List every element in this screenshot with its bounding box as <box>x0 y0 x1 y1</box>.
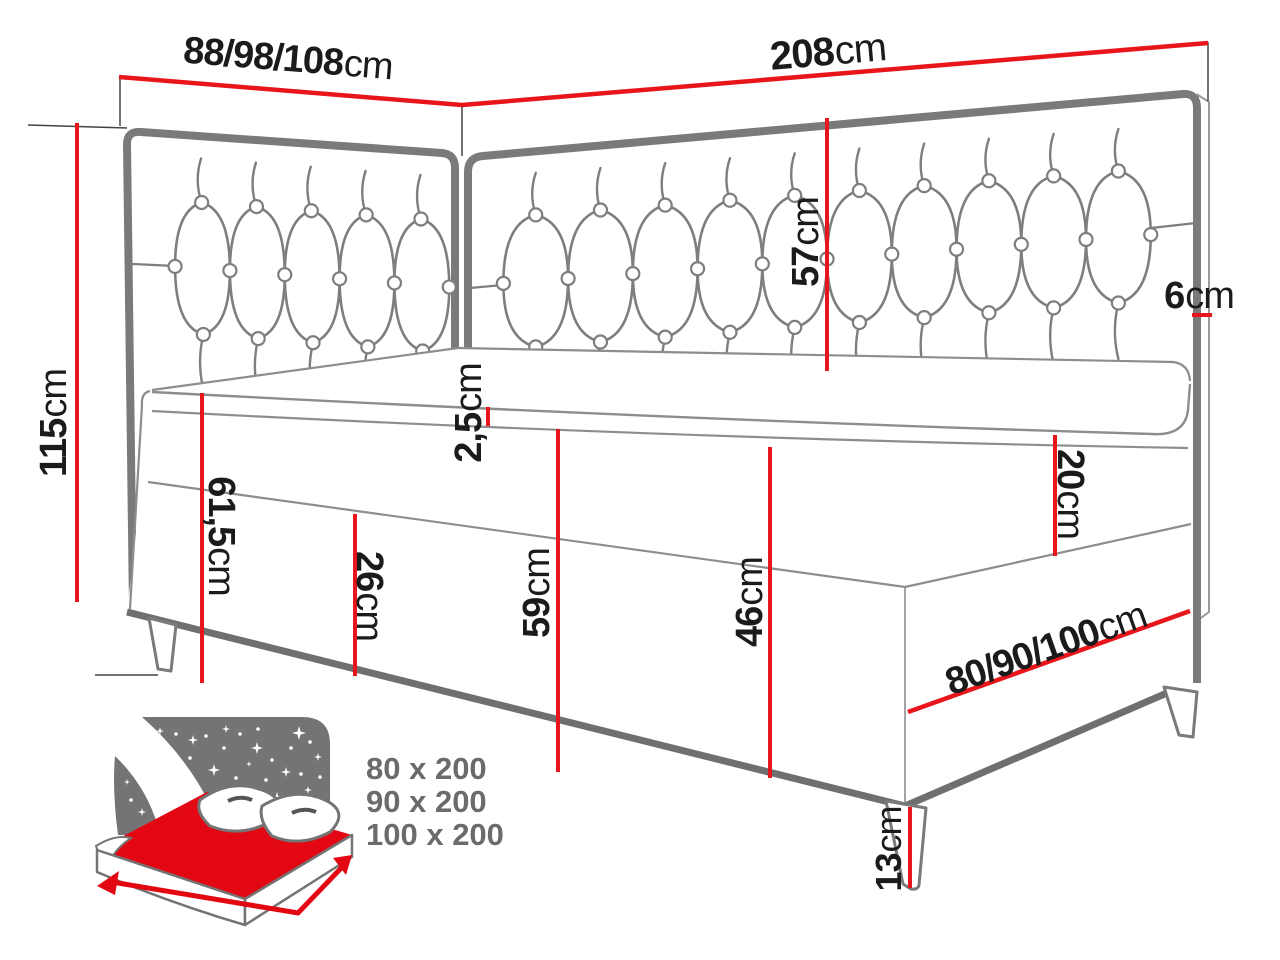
label-head-side-height: 61,5cm <box>202 476 240 596</box>
label-height-unit: cm <box>33 369 75 418</box>
label-lower-box-unit: cm <box>348 592 390 641</box>
label-topper: 2,5cm <box>450 363 488 462</box>
label-lower-box-height: 26cm <box>350 551 388 641</box>
label-leg-value: 13 <box>868 853 909 891</box>
label-length-value: 208 <box>768 30 835 79</box>
label-thickness-unit: cm <box>1185 275 1234 317</box>
label-mattress-height: 20cm <box>1051 449 1089 539</box>
label-topper-unit: cm <box>448 363 490 412</box>
label-head-side-unit: cm <box>200 547 242 596</box>
label-height-value: 115 <box>33 419 75 477</box>
dim-line-headboard-width <box>119 77 462 105</box>
label-lower-box-value: 26 <box>348 551 390 591</box>
label-height: 115cm <box>35 369 73 477</box>
label-mid-side-height: 59cm <box>518 548 556 638</box>
label-thickness-value: 6 <box>1164 275 1184 317</box>
back-right-leg <box>1164 687 1197 737</box>
icon-pillow-right <box>261 794 339 841</box>
label-length-unit: cm <box>833 25 888 73</box>
bed-dimension-diagram: 88/98/108cm 208cm 115cm 57cm 6cm 2,5cm 6… <box>0 0 1280 960</box>
label-panel-height: 57cm <box>787 197 825 287</box>
label-headboard-width-unit: cm <box>342 43 394 89</box>
label-foot-side-value: 46 <box>729 607 771 647</box>
label-foot-side-unit: cm <box>729 557 771 606</box>
size-options-list: 80 x 200 90 x 200 100 x 200 <box>366 752 504 851</box>
label-leg-height: 13cm <box>871 806 907 891</box>
label-foot-side-height: 46cm <box>731 557 769 647</box>
label-thickness: 6cm <box>1164 277 1234 315</box>
label-mid-side-unit: cm <box>516 548 558 597</box>
label-mattress-value: 20 <box>1049 449 1091 489</box>
label-topper-value: 2,5 <box>448 413 490 463</box>
bed-size-icon <box>96 717 352 925</box>
label-panel-height-value: 57 <box>785 247 827 287</box>
label-mattress-unit: cm <box>1049 490 1091 539</box>
size-option: 80 x 200 <box>366 752 504 785</box>
size-option: 90 x 200 <box>366 785 504 818</box>
label-panel-height-unit: cm <box>785 197 827 246</box>
label-mid-side-value: 59 <box>516 598 558 638</box>
label-length: 208cm <box>768 27 887 77</box>
label-leg-unit: cm <box>868 806 909 852</box>
size-option: 100 x 200 <box>366 818 504 851</box>
label-head-side-value: 61,5 <box>200 476 242 546</box>
